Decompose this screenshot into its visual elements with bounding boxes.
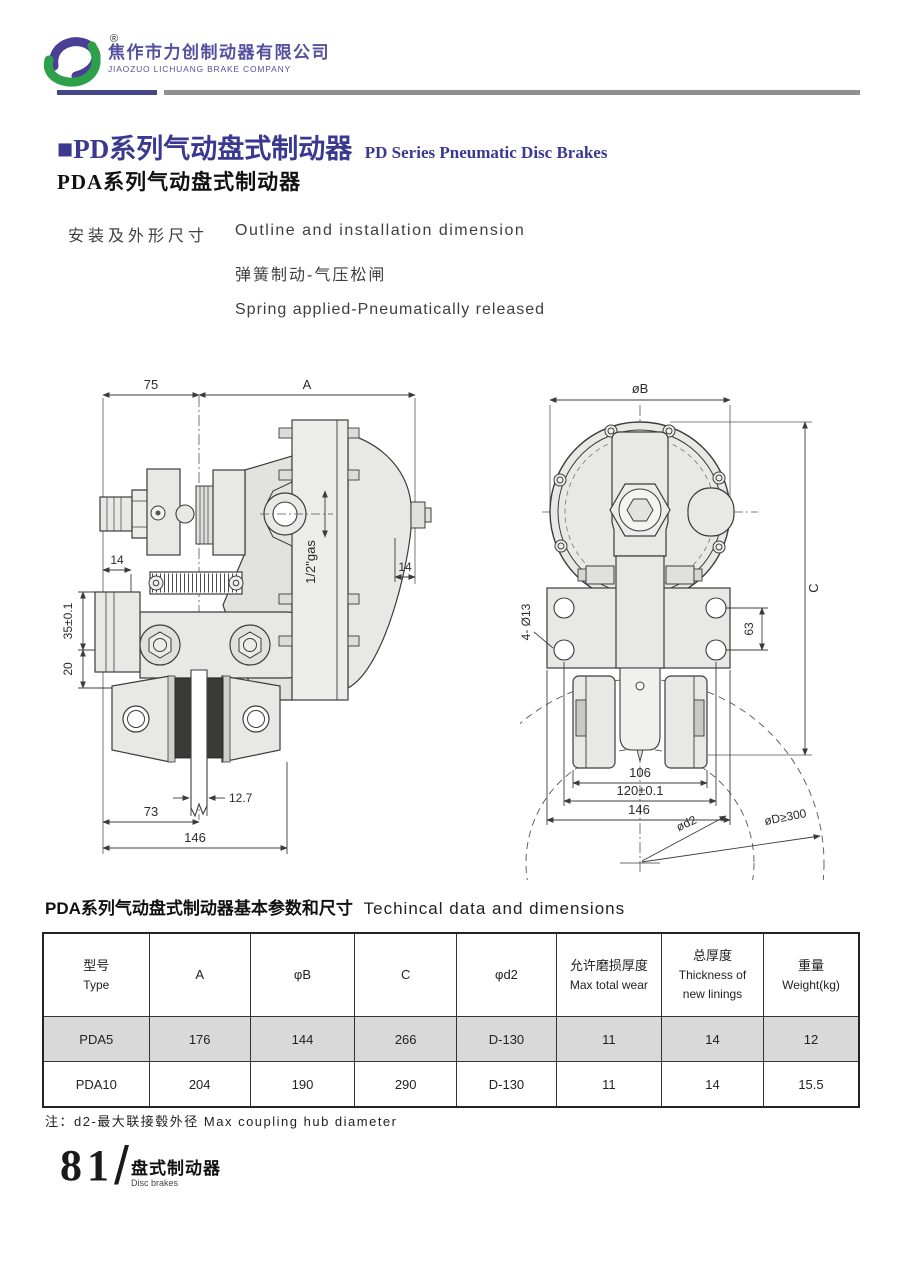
dim-label-146-front: 146: [628, 802, 650, 817]
col-thickness-en1: Thickness of: [662, 966, 763, 985]
front-side-port-boss: [688, 488, 734, 536]
cell-A: 176: [149, 1017, 250, 1062]
page-title-cn: ■PD系列气动盘式制动器: [57, 134, 352, 164]
dim-label-35: 35±0.1: [61, 602, 75, 639]
cell-C: 266: [355, 1017, 457, 1062]
table-row-pda5: PDA5 176 144 266 D-130 11 14 12: [43, 1017, 859, 1062]
col-header-thickness: 总厚度 Thickness of new linings: [661, 933, 763, 1017]
page-title-en: PD Series Pneumatic Disc Brakes: [365, 143, 608, 162]
dim-label-20: 20: [61, 662, 75, 676]
cell-phid2: D-130: [457, 1062, 557, 1108]
col-wear-cn: 允许磨损厚度: [557, 956, 661, 976]
side-spring-pack: [149, 572, 243, 594]
side-lever-plate-right: [213, 470, 245, 555]
front-view-drawing: øB C 4- Ø13 63 106 120±0.1 146 ød2 øD≥30…: [520, 370, 880, 880]
page-footer: 81 / 盘式制动器 Disc brakes: [60, 1144, 221, 1193]
dim-label-oB: øB: [632, 381, 649, 396]
cell-wear: 11: [556, 1062, 661, 1108]
dim-label-75: 75: [144, 377, 158, 392]
col-header-phiB: φB: [250, 933, 354, 1017]
dim-label-D300: øD≥300: [763, 806, 808, 828]
col-type-cn: 型号: [44, 956, 149, 976]
company-name-block: 焦作市力创制动器有限公司 JIAOZUO LICHUANG BRAKE COMP…: [108, 44, 330, 74]
cell-phiB: 144: [250, 1017, 354, 1062]
table-header-row: 型号 Type A φB C φd2 允许磨损厚度 Max total wear…: [43, 933, 859, 1017]
col-A: A: [150, 965, 250, 985]
intro-label-cn: 安装及外形尺寸: [68, 222, 208, 246]
dim-label-4-holes: 4- Ø13: [520, 603, 533, 640]
col-weight-en: Weight(kg): [764, 976, 858, 995]
side-brake-pad-left: [175, 678, 191, 758]
col-wear-en: Max total wear: [557, 976, 661, 995]
dim-label-73: 73: [144, 804, 158, 819]
cell-thickness: 14: [661, 1017, 763, 1062]
cell-thickness: 14: [661, 1062, 763, 1108]
col-header-A: A: [149, 933, 250, 1017]
side-pivot-ball: [176, 505, 194, 523]
dim-label-120: 120±0.1: [617, 783, 664, 798]
cell-C: 290: [355, 1062, 457, 1108]
series-subtitle: PDA系列气动盘式制动器: [57, 166, 301, 196]
dim-label-A: A: [303, 377, 312, 392]
intro-line2: 弹簧制动-气压松闸: [235, 261, 386, 285]
col-phid2: φd2: [457, 965, 556, 985]
footer-section-en: Disc brakes: [131, 1178, 221, 1188]
side-brake-pad-right: [207, 678, 223, 758]
intro-line3: Spring applied-Pneumatically released: [235, 301, 545, 319]
intro-line1: Outline and installation dimension: [235, 222, 525, 240]
col-header-C: C: [355, 933, 457, 1017]
col-header-weight: 重量 Weight(kg): [763, 933, 859, 1017]
dim-label-146-side: 146: [184, 830, 206, 845]
side-hex-bolt-left: [140, 625, 180, 665]
dim-label-106: 106: [629, 765, 651, 780]
col-thickness-cn: 总厚度: [662, 946, 763, 966]
cell-weight: 15.5: [763, 1062, 859, 1108]
page-title: ■PD系列气动盘式制动器 PD Series Pneumatic Disc Br…: [57, 127, 607, 166]
col-weight-cn: 重量: [764, 956, 858, 976]
side-mount-block: [95, 592, 140, 672]
dim-label-63: 63: [742, 622, 756, 636]
footer-slash: /: [114, 1142, 129, 1191]
header-rule-purple: [57, 90, 157, 95]
col-header-type: 型号 Type: [43, 933, 149, 1017]
col-header-phid2: φd2: [457, 933, 557, 1017]
cell-phiB: 190: [250, 1062, 354, 1108]
dim-label-gas: 1/2"gas: [303, 540, 318, 584]
dim-label-14-right: 14: [398, 560, 412, 574]
table-title-en: Techincal data and dimensions: [364, 899, 625, 918]
dim-label-12-7: 12.7: [229, 791, 253, 805]
spec-table: 型号 Type A φB C φd2 允许磨损厚度 Max total wear…: [42, 932, 860, 1108]
header-rule-gray: [164, 90, 860, 95]
dim-label-C: C: [806, 583, 821, 592]
cell-weight: 12: [763, 1017, 859, 1062]
footnote: 注：d2-最大联接毂外径 Max coupling hub diameter: [45, 1111, 398, 1130]
page-number: 81: [60, 1144, 114, 1188]
side-disc: [191, 670, 207, 816]
col-C: C: [355, 965, 456, 985]
col-thickness-en2: new linings: [662, 985, 763, 1004]
footer-section: 盘式制动器 Disc brakes: [131, 1154, 221, 1188]
side-hex-bolt-right: [230, 625, 270, 665]
company-name-cn: 焦作市力创制动器有限公司: [108, 44, 330, 63]
dim-label-14-left: 14: [110, 553, 124, 567]
col-type-en: Type: [44, 976, 149, 995]
cell-phid2: D-130: [457, 1017, 557, 1062]
side-view-drawing: 75 A 14 14 1/2"gas 35±0.1 20 12.7 73 146: [55, 370, 475, 880]
company-name-en: JIAOZUO LICHUANG BRAKE COMPANY: [108, 65, 330, 74]
dim-label-d2: ød2: [674, 813, 699, 835]
col-header-wear: 允许磨损厚度 Max total wear: [556, 933, 661, 1017]
table-title-cn: PDA系列气动盘式制动器基本参数和尺寸: [45, 899, 353, 918]
cell-A: 204: [149, 1062, 250, 1108]
side-adjuster-assembly: [100, 469, 245, 555]
footer-section-cn: 盘式制动器: [131, 1154, 221, 1179]
table-row-pda10: PDA10 204 190 290 D-130 11 14 15.5: [43, 1062, 859, 1108]
table-title: PDA系列气动盘式制动器基本参数和尺寸 Techincal data and d…: [45, 894, 625, 919]
cell-wear: 11: [556, 1017, 661, 1062]
front-caliper-pads: [573, 668, 707, 768]
cell-type: PDA10: [43, 1062, 149, 1108]
cell-type: PDA5: [43, 1017, 149, 1062]
side-pads-and-disc: [112, 670, 280, 816]
col-phiB: φB: [251, 965, 354, 985]
